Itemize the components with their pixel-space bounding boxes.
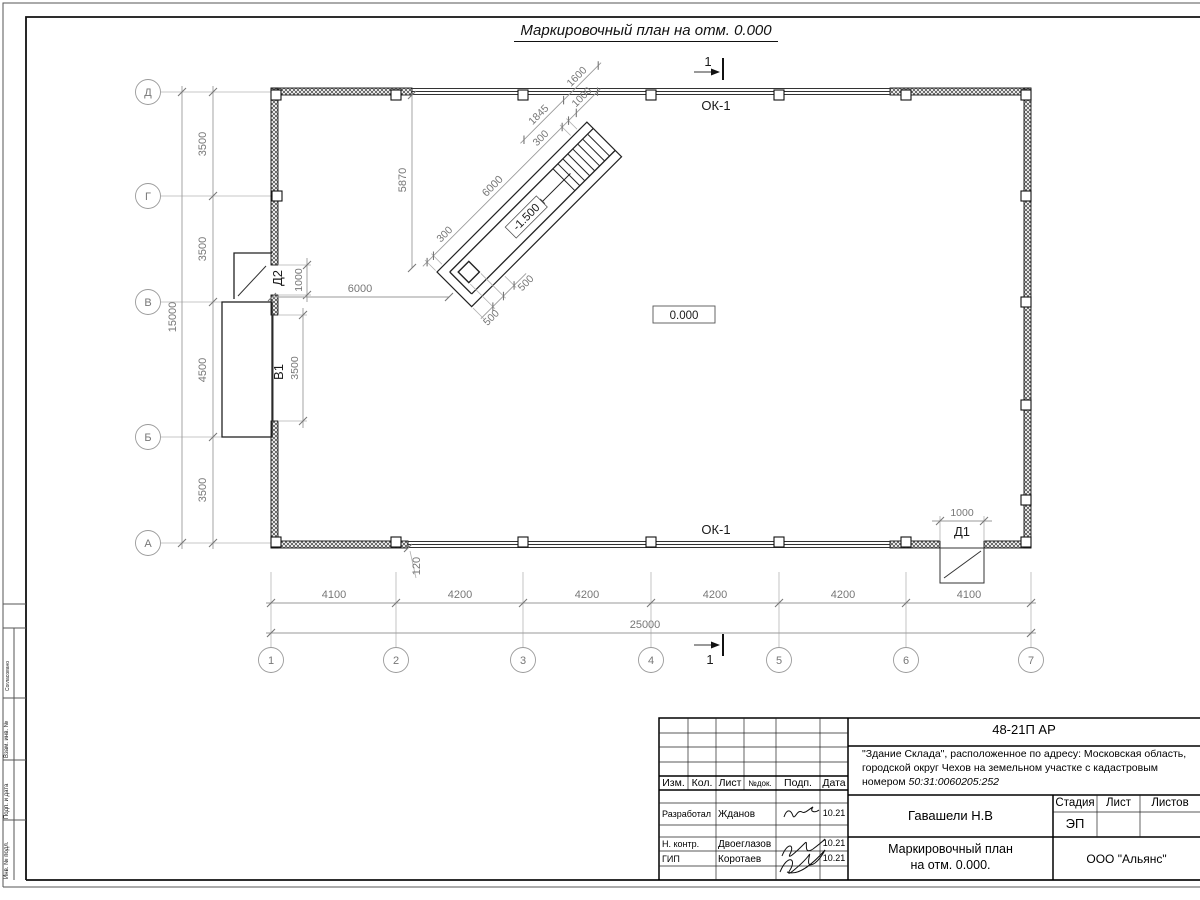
project-desc-line1: "Здание Склада", расположенное по адресу… <box>862 749 1198 761</box>
project-desc-line3: номером 50:31:0060205:252 <box>862 777 1198 789</box>
tb-name-1: Жданов <box>718 809 775 820</box>
signature-1 <box>784 807 819 817</box>
walls <box>271 88 1031 548</box>
axis-col-1: 1 <box>268 655 274 667</box>
axis-row-a: А <box>144 538 152 550</box>
tb-header-izm: Изм. <box>659 778 688 790</box>
gate-v1-label: В1 <box>271 364 286 380</box>
signatures <box>780 807 825 873</box>
section-mark-top: 1 <box>694 54 723 80</box>
project-desc-line2: городской округ Чехов на земельном участ… <box>862 763 1198 775</box>
stage-value: ЭП <box>1053 817 1097 831</box>
signature-3 <box>780 850 825 873</box>
doc-title-line1: Маркировочный план <box>848 843 1053 857</box>
sheet-label: Лист <box>1097 797 1140 810</box>
dim-bottom-1: 4100 <box>322 589 346 601</box>
ramp-dim-stair: 1845 <box>526 102 551 127</box>
door-d1: Д1 1000 <box>932 507 992 583</box>
signature-2 <box>782 839 825 856</box>
dim-left-3: 4500 <box>197 358 209 382</box>
doc-number: 48-21П АР <box>848 723 1200 737</box>
axis-col-4: 4 <box>648 655 654 667</box>
dim-left-4: 3500 <box>197 478 209 502</box>
frame-label-podp: Подп. и дата <box>4 761 10 819</box>
axis-row-g: Г <box>145 191 151 203</box>
tb-date-2: 10.21 <box>820 839 848 849</box>
door-d1-dim: 1000 <box>950 507 974 519</box>
ramp-dim-wall-a: 300 <box>434 224 455 245</box>
section-mark-bottom: 1 <box>694 634 723 667</box>
tb-header-kol: Кол. <box>688 778 716 790</box>
page-title: Маркировочный план на отм. 0.000 <box>446 22 846 39</box>
doc-title-line2: на отм. 0.000. <box>848 859 1053 873</box>
axis-col-6: 6 <box>903 655 909 667</box>
misc-dimensions: 6000 5870 120 <box>268 91 453 578</box>
gate-v1-dim: 3500 <box>289 356 301 380</box>
columns <box>271 90 1031 547</box>
tb-header-list: Лист <box>716 778 744 790</box>
axis-row-b: Б <box>144 432 151 444</box>
frame-label-vzam: Взам. инв. № <box>4 700 10 758</box>
tb-date-1: 10.21 <box>820 809 848 819</box>
level-mark-main: 0.000 <box>653 306 715 323</box>
dim-ramp-offset-left: 6000 <box>348 283 372 295</box>
ramp-dim-length: 6000 <box>480 174 506 200</box>
axis-row-v: В <box>144 297 151 309</box>
dim-bottom-2: 4200 <box>448 589 472 601</box>
tb-name-3: Коротаев <box>718 854 775 865</box>
tb-header-data: Дата <box>820 778 848 790</box>
ramp-dim-pad-b: 500 <box>516 273 537 294</box>
dim-ramp-offset-top: 5870 <box>397 168 409 192</box>
dim-bottom-total: 25000 <box>630 619 661 631</box>
left-dimensions: 3500 3500 4500 3500 15000 <box>167 86 217 549</box>
frame-label-agreed: Согласовано <box>5 627 11 691</box>
axis-col-5: 5 <box>776 655 782 667</box>
gate-v1: В1 3500 <box>222 302 307 437</box>
dim-left-2: 3500 <box>197 237 209 261</box>
dim-left-1: 3500 <box>197 132 209 156</box>
window-label-bottom: ОК-1 <box>701 522 730 537</box>
chief-name: Гавашели Н.В <box>848 809 1053 823</box>
door-d2-dim: 1000 <box>293 268 305 292</box>
stage-label: Стадия <box>1053 797 1097 810</box>
dim-bottom-5: 4200 <box>831 589 855 601</box>
axis-col-3: 3 <box>520 655 526 667</box>
axis-col-7: 7 <box>1028 655 1034 667</box>
tb-role-3: ГИП <box>662 855 716 865</box>
ramp-dim-pad-a: 500 <box>481 307 502 328</box>
dim-bottom-6: 4100 <box>957 589 981 601</box>
tb-role-1: Разработал <box>662 810 716 820</box>
frame-label-inv: Инв. № подл. <box>4 821 10 879</box>
section-number-bottom: 1 <box>706 652 713 667</box>
tb-header-podp: Подп. <box>776 778 820 790</box>
ramp-dim-wall-b: 300 <box>531 128 552 149</box>
tb-date-3: 10.21 <box>820 854 848 864</box>
dim-wall-offset: 120 <box>411 557 423 575</box>
tb-header-ndok: №док. <box>744 780 776 789</box>
ramp-pit: -1.500 300 6000 300 1000 1845 1600 <box>401 54 678 331</box>
door-d2-label: Д2 <box>270 270 285 286</box>
cadastral-number: 50:31:0060205:252 <box>909 776 1000 788</box>
axis-col-2: 2 <box>393 655 399 667</box>
tb-name-2: Двоеглазов <box>718 839 775 850</box>
door-d1-label: Д1 <box>954 524 970 539</box>
sheets-label: Листов <box>1140 797 1200 810</box>
dim-bottom-4: 4200 <box>703 589 727 601</box>
window-label-top: ОК-1 <box>701 98 730 113</box>
drawing-sheet: Д Г В Б А 3500 3500 4500 3500 15000 <box>0 0 1200 900</box>
tb-role-2: Н. контр. <box>662 840 716 850</box>
section-number-top: 1 <box>704 54 711 69</box>
axis-row-d: Д <box>144 87 152 99</box>
company-name: ООО "Альянс" <box>1053 853 1200 866</box>
dim-bottom-3: 4200 <box>575 589 599 601</box>
level-value-main: 0.000 <box>670 310 699 322</box>
dim-left-total: 15000 <box>167 302 179 333</box>
